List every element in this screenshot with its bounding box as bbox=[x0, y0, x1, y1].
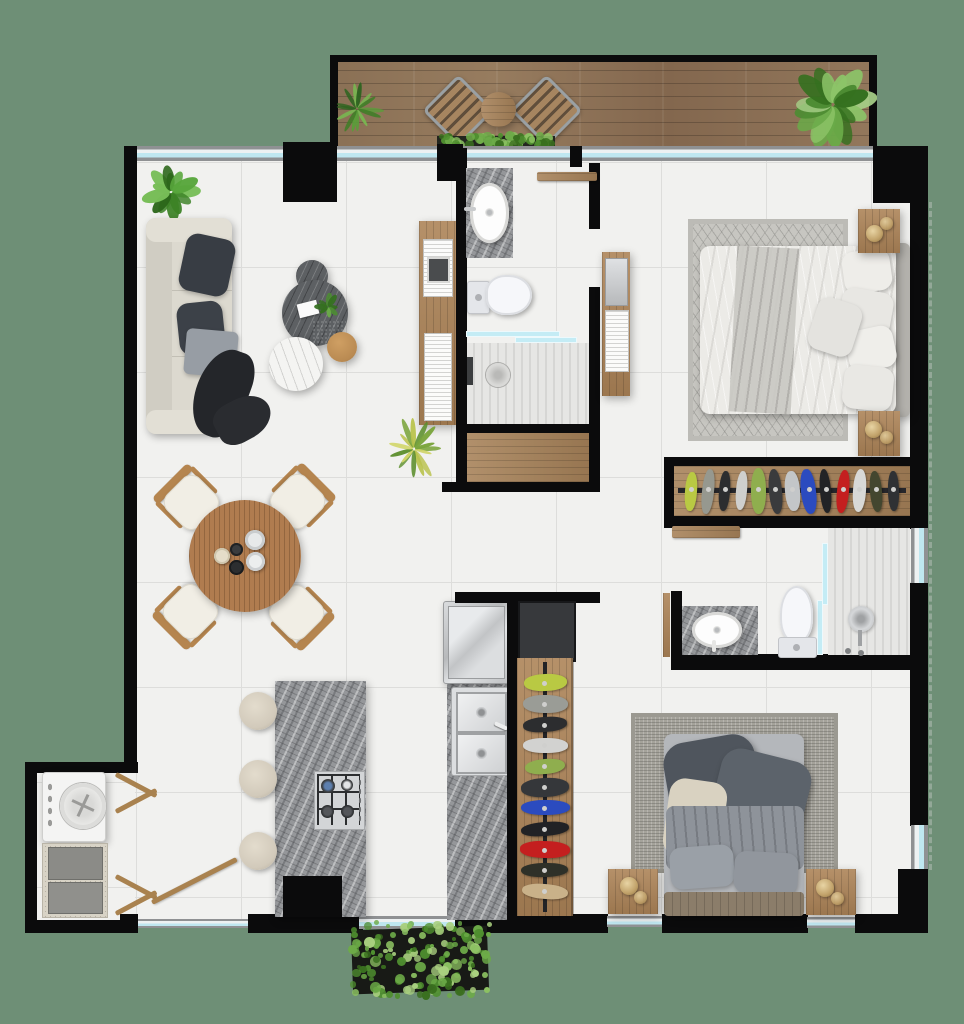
dashed-property-line bbox=[929, 202, 932, 870]
shrub-leaf bbox=[414, 955, 421, 962]
shrub-leaf bbox=[352, 939, 361, 948]
bath2-door-leaf bbox=[663, 593, 670, 657]
shrub-leaf bbox=[395, 993, 400, 998]
shrub-leaf bbox=[483, 132, 492, 141]
shrub-leaf bbox=[352, 989, 359, 996]
tv-console bbox=[602, 252, 630, 396]
shrub-leaf bbox=[412, 947, 417, 952]
bar-stool bbox=[239, 760, 277, 798]
shrub-leaf bbox=[439, 956, 445, 962]
sink-faucet bbox=[464, 207, 476, 211]
shower-valve bbox=[467, 357, 473, 385]
shrub-leaf bbox=[370, 982, 381, 993]
bar-stool bbox=[239, 832, 277, 870]
louver-door-symbol bbox=[117, 770, 161, 816]
table-lamp-base bbox=[634, 891, 647, 904]
closet-edge-shadow bbox=[571, 658, 574, 916]
window-right-bath2 bbox=[911, 528, 928, 584]
wall-corner-ne bbox=[873, 146, 928, 203]
shrub-leaf bbox=[402, 929, 407, 934]
shrub-leaf bbox=[482, 972, 489, 979]
hanger-hook bbox=[542, 848, 547, 853]
dinnerware-plate bbox=[246, 552, 265, 571]
fridge bbox=[443, 601, 509, 684]
shrub-leaf bbox=[447, 993, 452, 998]
plant-leaves bbox=[376, 418, 452, 480]
nightstand bbox=[806, 869, 856, 915]
wall-bottom-4 bbox=[662, 914, 808, 933]
sofa-backrest bbox=[146, 218, 172, 434]
nightstand bbox=[608, 869, 658, 914]
shower-control bbox=[858, 650, 864, 656]
tv-flat bbox=[605, 258, 628, 306]
bed-pillow bbox=[733, 850, 799, 895]
burner bbox=[341, 779, 353, 791]
plant-leaves bbox=[314, 293, 342, 321]
shrub-leaf bbox=[361, 974, 367, 980]
shrub-leaf bbox=[374, 944, 379, 949]
wall-bottom-5 bbox=[855, 914, 928, 933]
dinnerware-plate-dark bbox=[229, 560, 244, 575]
shrub-leaf bbox=[461, 958, 467, 964]
washing-machine bbox=[42, 772, 106, 842]
shrub-leaf bbox=[373, 956, 380, 963]
sink-drain bbox=[713, 626, 721, 634]
shrub-leaf bbox=[352, 949, 360, 957]
sink-drain bbox=[476, 748, 487, 759]
utility-tank bbox=[42, 843, 108, 918]
shrub-leaf bbox=[386, 991, 393, 998]
sink-drain bbox=[485, 208, 494, 217]
wall-left bbox=[124, 146, 137, 764]
island-base bbox=[283, 876, 342, 917]
shrub-leaf bbox=[365, 946, 369, 950]
hanger-hook bbox=[689, 487, 694, 492]
wall-closet-divider bbox=[456, 424, 600, 433]
wall-closet-bottom bbox=[442, 482, 600, 492]
hanger-hook bbox=[542, 723, 547, 728]
burner bbox=[321, 805, 334, 818]
shrub-leaf bbox=[351, 927, 357, 933]
plant-leaves bbox=[789, 56, 877, 153]
hanger-hook bbox=[723, 487, 728, 492]
framed-picture bbox=[427, 257, 450, 283]
hanger-hook bbox=[542, 806, 547, 811]
shrub-leaf bbox=[412, 983, 418, 989]
living-room-plant bbox=[140, 162, 202, 222]
shrub-leaf bbox=[535, 140, 541, 146]
toilet-flush-button bbox=[475, 294, 482, 301]
shrub-leaf bbox=[386, 941, 394, 949]
spiky-plant bbox=[376, 418, 452, 480]
shrub-leaf bbox=[484, 987, 490, 993]
shrub-leaf bbox=[381, 965, 386, 970]
bath1-sink bbox=[470, 183, 509, 243]
toilet-flush-button bbox=[793, 644, 800, 651]
shrub-leaf bbox=[408, 937, 415, 944]
shrub-leaf bbox=[406, 950, 410, 954]
master-blanket bbox=[729, 245, 800, 414]
shrub-leaf bbox=[390, 932, 396, 938]
shrub-leaf bbox=[505, 135, 510, 140]
shrub-leaf bbox=[451, 973, 461, 983]
dinnerware-cup bbox=[230, 543, 243, 556]
nightstand bbox=[858, 411, 900, 456]
toilet-bowl bbox=[486, 275, 532, 315]
shrub-leaf bbox=[364, 922, 372, 930]
shrub-leaf bbox=[487, 922, 492, 927]
tank-basin bbox=[48, 847, 103, 880]
shrub-leaf bbox=[385, 953, 393, 961]
kitchen-sink-unit bbox=[451, 687, 509, 776]
window-band-top bbox=[136, 146, 873, 161]
closet-clothes-rack bbox=[517, 662, 573, 912]
shrub-leaf bbox=[357, 965, 361, 969]
toilet-tank bbox=[778, 637, 817, 658]
shrub-leaf bbox=[352, 969, 360, 977]
dinnerware-plate bbox=[245, 530, 265, 550]
shrub-leaf bbox=[474, 929, 483, 938]
hanger-hook bbox=[824, 487, 829, 492]
bath2-sink bbox=[692, 612, 742, 648]
hanger-hook bbox=[542, 702, 547, 707]
sink-drain bbox=[476, 707, 487, 718]
shrub-leaf bbox=[439, 966, 449, 976]
coffee-table-sprig bbox=[314, 293, 342, 321]
bed-pillow bbox=[669, 844, 736, 890]
table-lamp-base bbox=[831, 892, 844, 905]
shower-head bbox=[848, 606, 874, 632]
gas-cooktop bbox=[314, 771, 365, 830]
wardrobe-clothes-rack bbox=[674, 466, 910, 516]
shrub-leaf bbox=[386, 924, 390, 928]
shrub-leaf bbox=[375, 934, 381, 940]
shrub-leaf bbox=[367, 969, 376, 978]
shower-glass-panel bbox=[817, 600, 823, 655]
hanger-hook bbox=[807, 487, 812, 492]
dining-table bbox=[189, 500, 301, 612]
shrub-leaf bbox=[369, 977, 373, 981]
wardrobe-wall-top bbox=[664, 457, 910, 466]
shrub-leaf bbox=[371, 950, 376, 955]
hanger-hook bbox=[542, 785, 547, 790]
burner bbox=[321, 779, 335, 793]
window-bottom-dining bbox=[138, 919, 250, 928]
shrub-leaf bbox=[350, 981, 356, 987]
hanger-hook bbox=[542, 827, 547, 832]
hanger-hook bbox=[790, 487, 795, 492]
shrub-leaf bbox=[383, 949, 387, 953]
shrub-leaf bbox=[417, 982, 424, 989]
washer-control-knobs bbox=[46, 781, 54, 831]
shrub-leaf bbox=[415, 962, 425, 972]
dinnerware-bowl bbox=[214, 548, 230, 564]
sink-faucet bbox=[712, 640, 716, 652]
shrub-leaf bbox=[453, 959, 458, 964]
plant-leaves bbox=[330, 66, 384, 152]
bath1-door-leaf bbox=[537, 172, 597, 181]
shower-glass-panel bbox=[822, 543, 828, 605]
shrub-leaf bbox=[443, 134, 450, 141]
shower-control bbox=[845, 648, 851, 654]
wall-right-mid bbox=[910, 583, 928, 666]
wall-bath1-right-lower bbox=[589, 287, 600, 491]
burner bbox=[341, 805, 354, 818]
hanger-hook bbox=[706, 487, 711, 492]
toilet-bowl bbox=[780, 586, 813, 642]
shrub-leaf bbox=[469, 956, 474, 961]
hedge-plants bbox=[346, 920, 494, 1000]
closet-cabinet bbox=[518, 601, 576, 662]
shrub-leaf bbox=[433, 921, 442, 930]
balcony-large-plant bbox=[789, 56, 877, 153]
shower-arm bbox=[858, 630, 862, 646]
book-stack bbox=[605, 310, 629, 372]
shrub-leaf bbox=[471, 963, 476, 968]
plant-leaves bbox=[140, 162, 202, 222]
shower-drain bbox=[486, 363, 510, 387]
tank-counter bbox=[48, 882, 103, 914]
shrub-leaf bbox=[397, 957, 406, 966]
laundry-wall-left bbox=[25, 762, 37, 933]
shrub-leaf bbox=[395, 974, 405, 984]
shrub-leaf bbox=[429, 947, 437, 955]
shrub-leaf bbox=[486, 932, 491, 937]
shrub-leaf bbox=[407, 923, 412, 928]
wall-right-lower bbox=[910, 665, 928, 826]
wall-right-upper bbox=[910, 202, 928, 529]
wall-top-living bbox=[283, 142, 337, 202]
wall-nub-top bbox=[570, 146, 582, 167]
shower2-wall-tiles bbox=[828, 528, 910, 655]
shrub-leaf bbox=[452, 937, 456, 941]
sink-basin bbox=[456, 733, 507, 774]
window-right-bedroom2 bbox=[911, 825, 928, 870]
cooktop-knobs bbox=[358, 778, 362, 822]
shrub-leaf bbox=[444, 951, 450, 957]
bistro-table bbox=[481, 92, 516, 127]
floor-plan bbox=[0, 0, 964, 1024]
bed-pillow bbox=[841, 364, 895, 413]
marble-side-table bbox=[269, 337, 323, 391]
hanger-hook bbox=[542, 681, 547, 686]
shrub-leaf bbox=[457, 989, 463, 995]
shrub-leaf bbox=[466, 133, 474, 141]
shrub-leaf bbox=[411, 973, 417, 979]
shrub-leaf bbox=[472, 970, 479, 977]
balcony-palm-plant bbox=[330, 66, 384, 152]
nightstand bbox=[858, 209, 900, 253]
hanger-hook bbox=[841, 487, 846, 492]
shrub-leaf bbox=[470, 987, 476, 993]
linen-closet-floor bbox=[467, 433, 589, 482]
window-bottom-bedroom2-right bbox=[807, 917, 856, 928]
fridge-top bbox=[448, 606, 505, 679]
shrub-leaf bbox=[374, 920, 379, 925]
shrub-leaf bbox=[364, 951, 371, 958]
wood-side-table bbox=[327, 332, 357, 362]
bar-stool bbox=[239, 692, 277, 730]
book-stack bbox=[424, 333, 452, 421]
shower-floor bbox=[467, 343, 589, 424]
table-lamp-base bbox=[880, 217, 893, 230]
guest-headboard bbox=[664, 892, 804, 916]
shrub-leaf bbox=[419, 932, 426, 939]
shrub-leaf bbox=[445, 982, 453, 990]
window-bottom-bedroom2-left bbox=[607, 916, 665, 927]
bookshelf-console bbox=[419, 221, 457, 425]
shrub-leaf bbox=[529, 136, 536, 143]
shrub-leaf bbox=[446, 942, 453, 949]
table-lamp-base bbox=[880, 431, 893, 444]
shrub-leaf bbox=[536, 132, 544, 140]
shrub-leaf bbox=[458, 921, 462, 925]
louver-door-symbol bbox=[117, 872, 161, 918]
bath2-shelf bbox=[672, 526, 740, 538]
